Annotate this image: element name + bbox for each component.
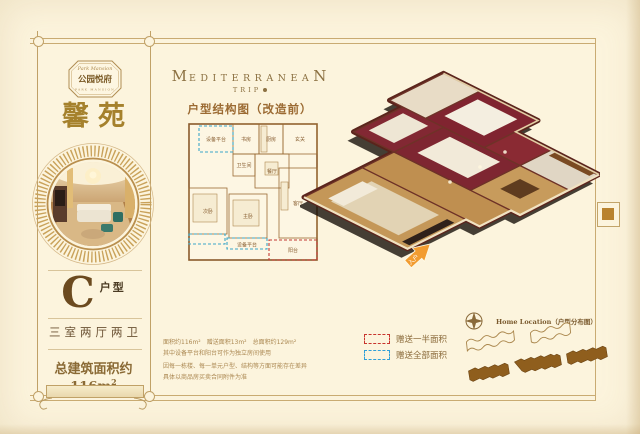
disclaimer-line1: 因每一栋楼、每一单元户型、结构等方面可能存在差异 <box>163 362 348 373</box>
brand-badge: Park Mansion 公园悦府 PARK MANSION <box>68 60 122 98</box>
interior-photo-medallion <box>29 140 159 270</box>
edge-square-ornament <box>597 202 620 227</box>
plan-outer-walls <box>189 124 317 260</box>
project-name: 馨苑 <box>37 94 150 133</box>
panel-divider-1 <box>48 270 142 271</box>
building-outline-1 <box>466 331 515 352</box>
render-light-2 <box>478 165 482 169</box>
building-solid-2 <box>514 353 562 374</box>
disclaimer-notes: 因每一栋楼、每一单元户型、结构等方面可能存在差异 具体以商品房买卖合同附件为准 <box>163 362 348 383</box>
home-location-map: Home Location（户型分布图） <box>452 306 620 398</box>
unit-type-block: C户型 <box>37 273 150 313</box>
page-edge-bottom <box>0 424 640 434</box>
legend-half-gift-label: 赠送一半面积 <box>396 333 447 345</box>
legend-full-gift-label: 赠送全部面积 <box>396 349 447 361</box>
panel-divider-2 <box>48 318 142 319</box>
panel-pedestal <box>46 385 144 398</box>
render-light-3 <box>503 150 507 154</box>
panel-corner-dot-tr <box>144 36 155 47</box>
legend-full-gift-swatch <box>364 350 390 360</box>
disclaimer-line2: 具体以商品房买卖合同附件为准 <box>163 373 348 384</box>
apartment-3d-render: 入户 <box>300 32 600 272</box>
badge-subtext: PARK MANSION <box>75 88 115 92</box>
area-notes: 面积约116m² 赠送面积13m² 总面积约129m² 其中设备平台和阳台可作为… <box>163 338 348 359</box>
panel-corner-dot-br <box>144 391 155 402</box>
panel-corner-dot-tl <box>33 36 44 47</box>
subtitle-dot-icon <box>263 88 267 92</box>
plan-sofa <box>281 182 288 210</box>
unit-letter: C <box>61 268 94 317</box>
badge-name: 公园悦府 <box>78 74 113 85</box>
location-map-title: Home Location（户型分布图） <box>496 317 597 326</box>
unit-suffix: 户型 <box>100 281 126 294</box>
plan-label-dining: 餐厅 <box>267 168 277 175</box>
series-title-first: M <box>172 67 189 85</box>
plan-label-equip-top: 设备平台 <box>206 136 226 143</box>
area-note-line2: 其中设备平台和阳台可作为独立房间使用 <box>163 349 348 360</box>
building-solid-3 <box>566 346 608 365</box>
compass-icon <box>465 312 483 330</box>
plan-label-bath: 卫生间 <box>236 162 251 169</box>
plan-label-bed2: 次卧 <box>203 208 213 215</box>
plan-label-kitchen: 厨房 <box>266 136 276 143</box>
building-solid-1 <box>468 363 510 382</box>
plan-bed2-furniture <box>193 194 217 222</box>
plan-label-study: 书房 <box>241 136 251 143</box>
area-note-line1: 面积约116m² 赠送面积13m² 总面积约129m² <box>163 338 348 349</box>
rooms-description: 三室两厅两卫 <box>37 324 150 340</box>
plan-bed1-furniture <box>233 200 259 226</box>
plan-label-balcony: 阳台 <box>288 247 298 254</box>
edge-square-fill <box>602 208 614 220</box>
panel-divider-3 <box>48 349 142 350</box>
plan-label-equip-bottom: 设备平台 <box>237 242 257 249</box>
series-subtitle-text: TRIP <box>233 86 261 94</box>
page-edge-right <box>626 0 640 434</box>
badge-script: Park Mansion <box>77 66 113 72</box>
panel-corner-dot-bl <box>33 391 44 402</box>
render-light-1 <box>448 180 452 184</box>
legend-half-gift-swatch <box>364 334 390 344</box>
series-title-mid: EDITERRANEA <box>189 73 313 84</box>
brochure-page: Park Mansion 公园悦府 PARK MANSION 馨苑 <box>0 0 640 434</box>
plan-label-bed1: 主卧 <box>243 213 253 220</box>
